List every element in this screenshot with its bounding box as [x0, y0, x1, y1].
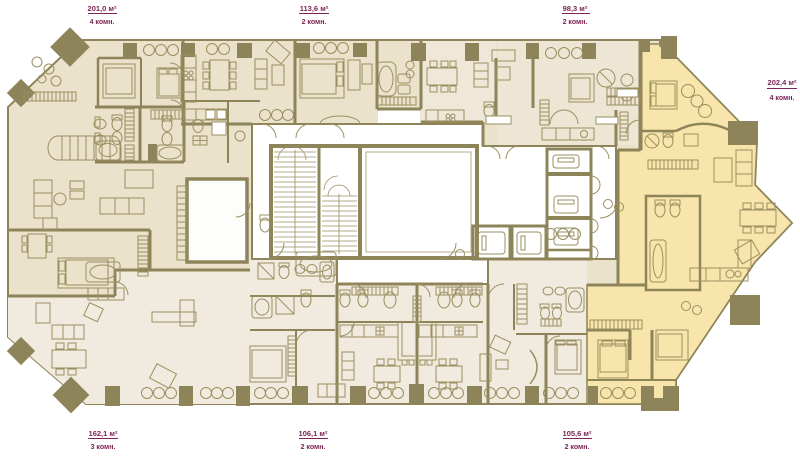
svg-text:106,1 м²: 106,1 м²: [299, 429, 328, 438]
svg-text:2 комн.: 2 комн.: [565, 444, 590, 451]
svg-text:2 комн.: 2 комн.: [302, 19, 327, 26]
svg-text:202,4 м²: 202,4 м²: [768, 78, 797, 87]
svg-text:2 комн.: 2 комн.: [301, 444, 326, 451]
svg-text:4 комн.: 4 комн.: [770, 95, 795, 102]
svg-text:105,6 м²: 105,6 м²: [563, 429, 592, 438]
svg-text:2 комн.: 2 комн.: [563, 19, 588, 26]
svg-text:98,3 м²: 98,3 м²: [563, 4, 588, 13]
svg-text:162,1 м²: 162,1 м²: [89, 429, 118, 438]
svg-text:4 комн.: 4 комн.: [90, 19, 115, 26]
svg-text:201,0 м²: 201,0 м²: [88, 4, 117, 13]
svg-text:113,6 м²: 113,6 м²: [300, 4, 329, 13]
svg-text:3 комн.: 3 комн.: [91, 444, 116, 451]
